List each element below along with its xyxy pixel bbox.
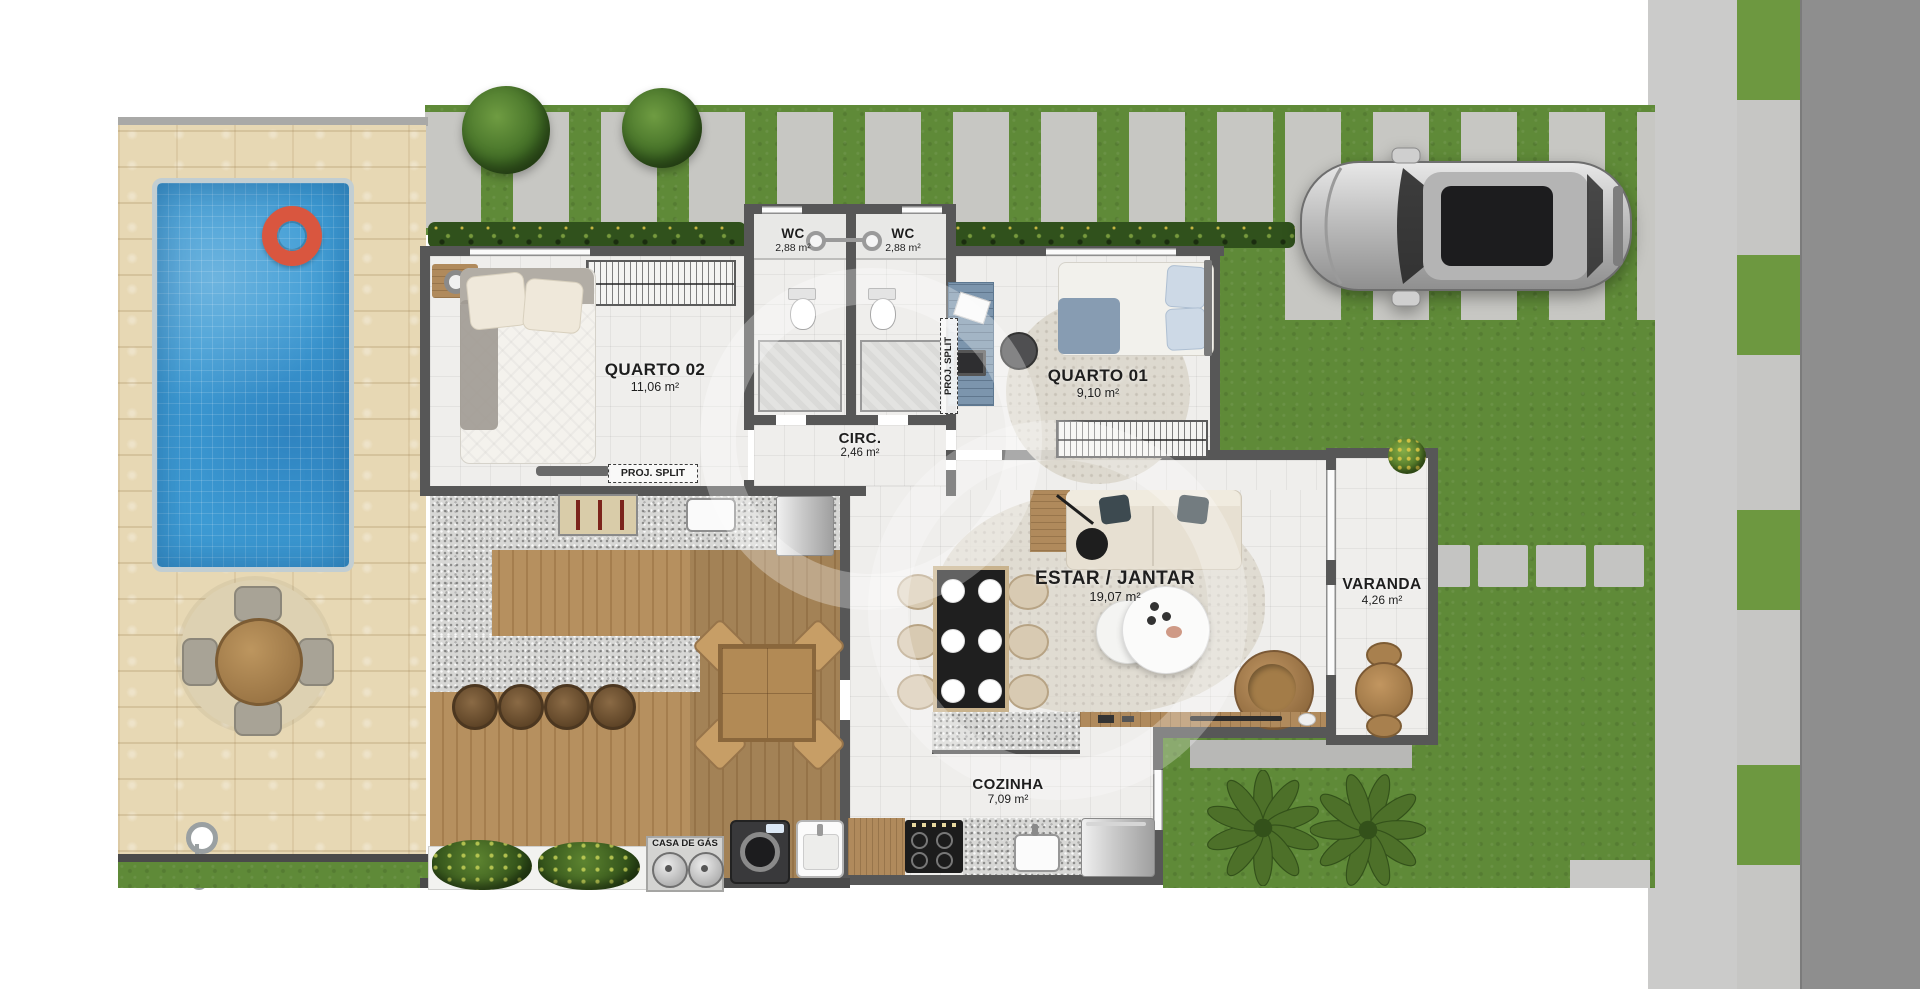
wardrobe bbox=[586, 260, 736, 306]
patio-chair bbox=[182, 638, 218, 686]
wall bbox=[1163, 726, 1336, 738]
decor-flower bbox=[1166, 626, 1182, 638]
wall bbox=[420, 486, 866, 496]
stepping-stone bbox=[1536, 545, 1586, 587]
decor-item bbox=[1147, 616, 1156, 625]
wc1-area: 2,88 m² bbox=[748, 242, 838, 254]
wall bbox=[420, 246, 430, 496]
quarto02-label: QUARTO 02 11,06 m² bbox=[575, 360, 735, 394]
pillow bbox=[522, 278, 584, 335]
kitchen-sink bbox=[1014, 834, 1060, 872]
bar-stool bbox=[544, 684, 590, 730]
washer-drum bbox=[740, 832, 780, 872]
desk-chair bbox=[1000, 332, 1038, 370]
tree-icon bbox=[462, 86, 550, 174]
bed-bench bbox=[536, 466, 610, 476]
papasan-cushion bbox=[1248, 664, 1296, 712]
headboard bbox=[1204, 260, 1212, 356]
sofa-back bbox=[1066, 490, 1240, 506]
gas-valve bbox=[701, 865, 708, 872]
wall bbox=[840, 492, 850, 680]
planter-shrub bbox=[432, 840, 532, 890]
patio-chair bbox=[298, 638, 334, 686]
bar-stool bbox=[452, 684, 498, 730]
kitchen-peninsula bbox=[932, 712, 1080, 754]
plate bbox=[978, 679, 1002, 703]
laptop-icon bbox=[954, 350, 986, 376]
soundbar bbox=[1190, 716, 1282, 721]
car bbox=[1295, 146, 1640, 308]
pillow bbox=[1165, 307, 1207, 351]
burner bbox=[936, 852, 953, 869]
cozinha-name: COZINHA bbox=[938, 776, 1078, 793]
gourmet-fridge bbox=[776, 496, 834, 556]
plate bbox=[941, 679, 965, 703]
kitchen-counter-wood bbox=[848, 818, 905, 875]
proj-split-text: PROJ. SPLIT bbox=[943, 337, 954, 395]
wc2-name: WC bbox=[858, 226, 948, 242]
wall bbox=[754, 415, 776, 425]
window bbox=[470, 248, 590, 256]
varanda-name: VARANDA bbox=[1322, 576, 1442, 594]
circ-area: 2,46 m² bbox=[790, 447, 930, 460]
wall bbox=[806, 415, 856, 425]
stepping-stone bbox=[1478, 545, 1528, 587]
sideboard-item bbox=[1122, 716, 1134, 722]
outdoor-shower-icon bbox=[186, 822, 218, 854]
palm-plant-icon bbox=[1310, 772, 1426, 888]
dining-chair bbox=[1007, 624, 1049, 660]
quarto02-name: QUARTO 02 bbox=[575, 360, 735, 380]
pillow bbox=[1165, 265, 1208, 310]
wall bbox=[1326, 458, 1336, 470]
wall bbox=[1153, 726, 1163, 770]
shower-stall bbox=[860, 340, 942, 412]
refrigerator bbox=[1081, 818, 1155, 877]
casa-de-gas-text: CASA DE GÁS bbox=[652, 838, 718, 849]
wall bbox=[908, 415, 956, 425]
estar-jantar-label: ESTAR / JANTAR 19,07 m² bbox=[1005, 568, 1225, 605]
bistro-table bbox=[1355, 662, 1413, 720]
wall bbox=[744, 480, 754, 496]
patio-chair bbox=[234, 586, 282, 622]
tree-icon bbox=[622, 88, 702, 168]
plate bbox=[978, 579, 1002, 603]
skewer-icon bbox=[576, 500, 580, 530]
wall bbox=[1220, 450, 1336, 460]
wc1-name: WC bbox=[748, 226, 838, 242]
toilet-icon bbox=[790, 298, 816, 330]
proj-split-label: PROJ. SPLIT bbox=[608, 464, 698, 483]
floor-lamp-icon bbox=[1076, 528, 1108, 560]
sidewalk-planting-strip bbox=[1737, 0, 1800, 989]
floor-plan: CASA DE GÁS QUARTO 02 11,06 m² WC 2,88 m… bbox=[0, 0, 1920, 989]
sofa-cushion-divider bbox=[1152, 506, 1154, 566]
bed-throw bbox=[1058, 298, 1120, 354]
pillow bbox=[1098, 494, 1131, 525]
faucet-icon bbox=[1032, 824, 1038, 836]
washer-panel bbox=[766, 824, 784, 833]
casa-de-gas-label: CASA DE GÁS bbox=[644, 839, 726, 850]
planter-shrub bbox=[538, 842, 640, 890]
swimming-pool bbox=[152, 178, 354, 572]
patio-table bbox=[215, 618, 303, 706]
swim-ring-float-icon bbox=[262, 206, 322, 266]
bar-stool bbox=[498, 684, 544, 730]
wc1-label: WC 2,88 m² bbox=[748, 226, 838, 254]
bistro-chair bbox=[1366, 714, 1402, 738]
circ-name: CIRC. bbox=[790, 430, 930, 447]
quarto01-area: 9,10 m² bbox=[1018, 386, 1178, 400]
shower-stall bbox=[758, 340, 842, 412]
wardrobe bbox=[1056, 420, 1208, 458]
decor-item bbox=[1162, 612, 1171, 621]
varanda-label: VARANDA 4,26 m² bbox=[1322, 576, 1442, 608]
window bbox=[762, 206, 802, 214]
burner bbox=[911, 832, 928, 849]
dining-chair bbox=[1007, 674, 1049, 710]
varanda-area: 4,26 m² bbox=[1322, 594, 1442, 608]
burner bbox=[911, 852, 928, 869]
skewer-icon bbox=[598, 500, 602, 530]
wall bbox=[946, 450, 956, 460]
hedge-row bbox=[950, 222, 1295, 248]
faucet-icon bbox=[817, 824, 823, 836]
window bbox=[902, 206, 942, 214]
proj-split-label-vertical: PROJ. SPLIT bbox=[940, 318, 958, 414]
plate bbox=[978, 629, 1002, 653]
pillow bbox=[465, 271, 528, 331]
gas-valve bbox=[665, 865, 672, 872]
window bbox=[1046, 248, 1176, 256]
wc2-label: WC 2,88 m² bbox=[858, 226, 948, 254]
quarto02-area: 11,06 m² bbox=[575, 380, 735, 394]
deck-table bbox=[718, 644, 816, 742]
plate bbox=[941, 629, 965, 653]
refrigerator-handle bbox=[1086, 822, 1146, 826]
plate bbox=[941, 579, 965, 603]
pillow bbox=[1176, 494, 1209, 524]
sidewalk-patch bbox=[1570, 860, 1650, 888]
decor-bowl bbox=[1298, 713, 1316, 726]
wall bbox=[946, 470, 956, 496]
burner bbox=[936, 832, 953, 849]
cozinha-label: COZINHA 7,09 m² bbox=[938, 776, 1078, 807]
palm-plant-icon bbox=[1205, 770, 1321, 886]
stepping-stone bbox=[1594, 545, 1644, 587]
hedge-row bbox=[428, 222, 746, 248]
quarto01-label: QUARTO 01 9,10 m² bbox=[1018, 366, 1178, 400]
wall bbox=[856, 415, 878, 425]
wc2-area: 2,88 m² bbox=[858, 242, 948, 254]
quarto01-name: QUARTO 01 bbox=[1018, 366, 1178, 386]
bar-stool bbox=[590, 684, 636, 730]
cooktop-knobs bbox=[912, 823, 956, 827]
road bbox=[1800, 0, 1920, 989]
window bbox=[1326, 470, 1336, 560]
estar-jantar-name: ESTAR / JANTAR bbox=[1005, 568, 1225, 590]
laundry-basin bbox=[803, 834, 839, 870]
gourmet-sink bbox=[686, 498, 736, 532]
circ-label: CIRC. 2,46 m² bbox=[790, 430, 930, 460]
corner-plant bbox=[1388, 438, 1426, 474]
cozinha-area: 7,09 m² bbox=[938, 793, 1078, 807]
proj-split-text: PROJ. SPLIT bbox=[621, 467, 685, 479]
skewer-icon bbox=[620, 500, 624, 530]
sideboard-item bbox=[1098, 715, 1114, 723]
toilet-icon bbox=[870, 298, 896, 330]
estar-jantar-area: 19,07 m² bbox=[1005, 590, 1225, 605]
